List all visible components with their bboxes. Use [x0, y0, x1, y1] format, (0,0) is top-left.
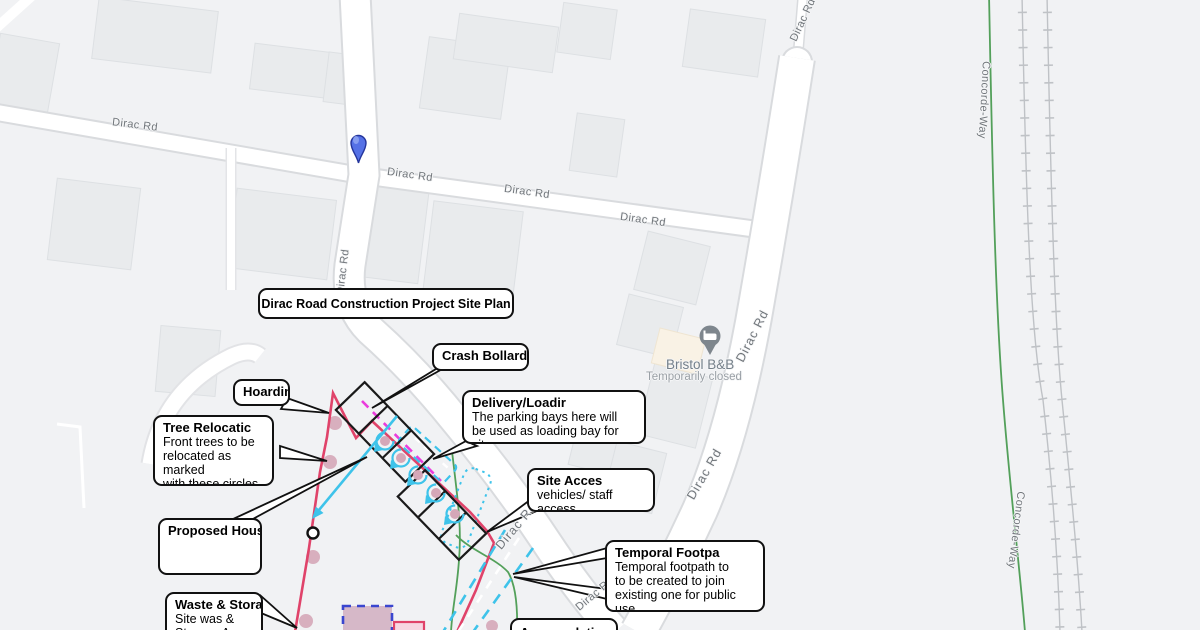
callout-waste-storage: Waste & Storag Site was & Storage Area — [165, 592, 263, 630]
callout-proposed-house: Proposed House — [158, 518, 262, 575]
survey-point-circle — [308, 528, 319, 539]
tree-relocation-label: Tree Relocatic — [163, 421, 264, 435]
relocation-arrow — [312, 416, 397, 519]
proposed-house-label: Proposed House — [168, 524, 252, 538]
temporal-footpath-note: Temporal footpath to to be created to jo… — [615, 560, 755, 612]
accommodation-label: Accomodatio — [520, 626, 608, 630]
callout-temporal-footpath: Temporal Footpa Temporal footpath to to … — [605, 540, 765, 612]
blue-map-pin[interactable] — [351, 136, 366, 164]
tree-relocation-markers — [374, 433, 464, 526]
waste-storage-area — [343, 606, 392, 630]
poi-status: Temporarily closed — [646, 371, 742, 383]
waste-storage-label: Waste & Storag — [175, 598, 253, 612]
site-access-note: vehicles/ staff access — [537, 488, 645, 512]
callout-site-access: Site Acces vehicles/ staff access — [527, 468, 655, 512]
plan-title: Dirac Road Construction Project Site Pla… — [261, 297, 510, 311]
waste-storage-note: Site was & Storage Area — [175, 612, 253, 630]
map-canvas[interactable]: Dirac Rd Dirac Rd Dirac Rd Dirac Rd Dira… — [0, 0, 1200, 630]
callout-tree-relocation: Tree Relocatic Front trees to be relocat… — [153, 415, 274, 486]
poi-pin-icon[interactable] — [700, 326, 721, 356]
storage-pen-outline — [394, 622, 424, 630]
crash-bollard-label: Crash Bollard — [442, 349, 519, 363]
callout-delivery-loading: Delivery/Loadir The parking bays here wi… — [462, 390, 646, 444]
callout-title: Dirac Road Construction Project Site Pla… — [258, 288, 514, 319]
tree-relocation-note: Front trees to be relocated as marked wi… — [163, 435, 264, 486]
callout-accommodation: Accomodatio — [510, 618, 618, 630]
callout-crash-bollard: Crash Bollard — [432, 343, 529, 371]
temporal-footpath-label: Temporal Footpa — [615, 546, 755, 560]
poi-name[interactable]: Bristol B&B — [666, 357, 734, 372]
callout-hoarding: Hoardin — [233, 379, 290, 406]
delivery-loading-note: The parking bays here will be used as lo… — [472, 410, 636, 444]
hoarding-label: Hoardin — [243, 385, 280, 399]
site-access-label: Site Acces — [537, 474, 645, 488]
delivery-loading-label: Delivery/Loadir — [472, 396, 636, 410]
